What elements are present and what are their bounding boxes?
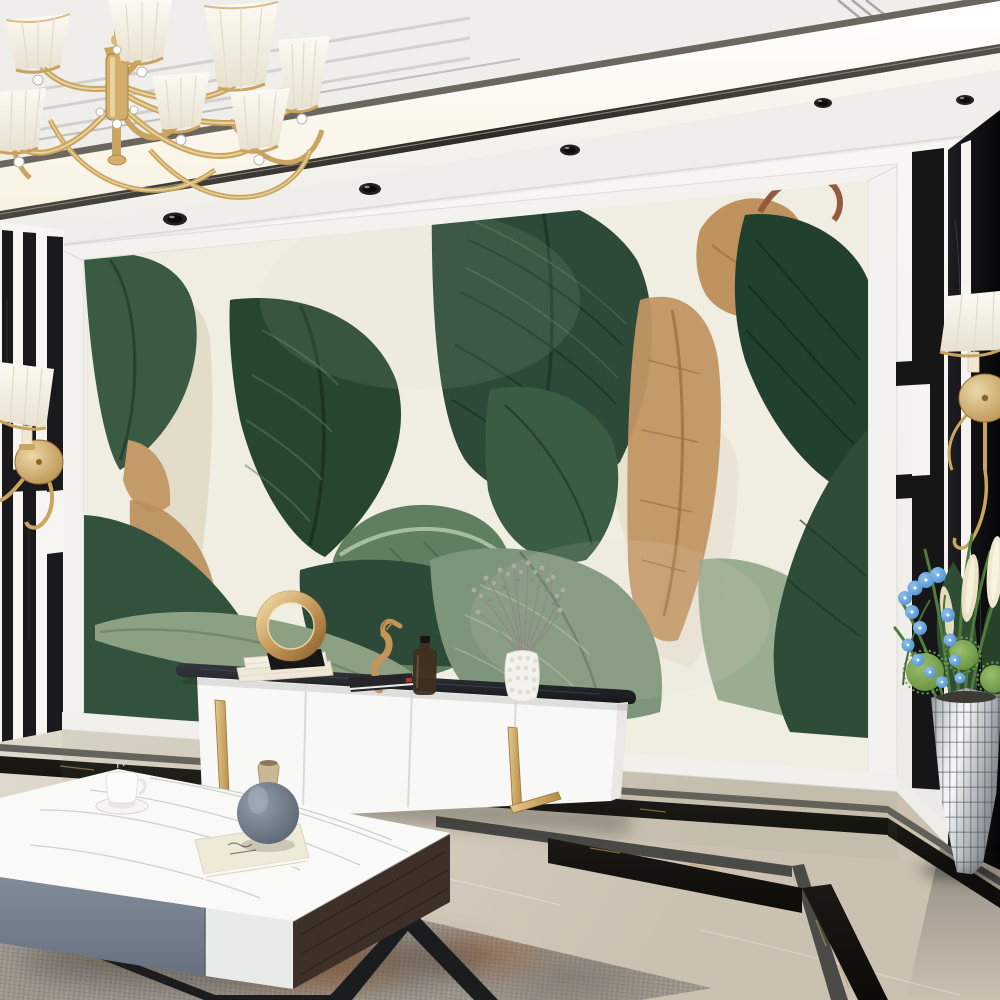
living-room-scene bbox=[0, 0, 1000, 1000]
coffee-table bbox=[0, 0, 1000, 1000]
table-white-drawer bbox=[205, 907, 293, 989]
